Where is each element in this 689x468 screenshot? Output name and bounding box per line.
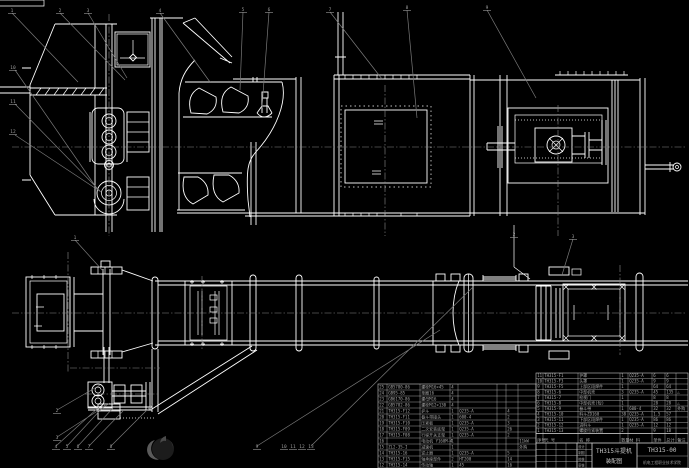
bom-table-right-cell: TH315-12 — [544, 423, 564, 428]
support-braces — [152, 346, 257, 414]
generated-annotations: 25GB5780-86螺栓M16×45424GB95-85垫圈16423GB61… — [8, 5, 688, 468]
bom-table-right-cell: 9 — [537, 384, 540, 389]
bom-table-left-cell: 3 — [507, 421, 510, 426]
bom-table-left-cell: TH315-F10 — [388, 421, 410, 426]
bom-table-right-cell: 3 — [537, 417, 540, 422]
bom-table-right-cell: 1 — [621, 373, 624, 378]
bom-table-left-cell: 螺母M16 — [421, 396, 437, 402]
leader-lines — [12, 10, 573, 446]
bom-table-left-cell: 4 — [507, 409, 510, 414]
bom-header-cell: 备注 — [677, 437, 686, 444]
bom-table-right-cell: 11 — [537, 373, 542, 378]
bom-table-right-cell: 检视门 — [579, 394, 591, 400]
title-product: TH315斗提机 — [596, 447, 632, 455]
bom-table-left-cell: 13 — [379, 457, 384, 462]
bom-table-left-cell: 轴承座部件 — [421, 456, 441, 462]
bom-table-left-cell: 螺栓M12×130 — [421, 402, 446, 408]
bom-table-left-cell: 12 — [379, 463, 384, 468]
bom-table-left-cell: 5 — [507, 451, 510, 456]
bom-table-right-cell: 1.5 — [653, 412, 661, 417]
bom-header-cell: 代 号 — [544, 437, 555, 444]
bom-table-right-cell: TH315-11 — [544, 417, 564, 422]
bom-table-right-cell: TH315-9 — [544, 406, 561, 411]
bom-table-right-cell: 1 — [621, 379, 624, 384]
bom-table-left-cell: 畚斗带接头 — [421, 414, 441, 420]
bom-table-right-cell: 4 — [537, 412, 540, 417]
bom-table-right-cell: 头罩 — [579, 378, 587, 384]
bom-table-right-cell: △ — [677, 390, 680, 395]
bom-table-right-cell: 28 — [653, 401, 658, 406]
bom-table-left-cell: 18 — [379, 427, 384, 432]
inspection-door — [345, 110, 427, 183]
bom-table-left-cell: 4 — [451, 403, 454, 408]
bom-table-right-cell: 中部机壳(短) — [579, 400, 604, 406]
bom-table-left-cell: 1 — [451, 409, 454, 414]
bom-table-right-cell: 6 — [653, 373, 656, 378]
bom-table-left-cell: 2 — [507, 433, 510, 438]
sheet-corner-frame — [0, 0, 44, 6]
bucket-bolt — [257, 92, 272, 117]
bom-table-left-cell: 17 — [379, 433, 384, 438]
bom-table-left-cell: 逆止器 — [421, 450, 433, 456]
bom-table-right-cell: △ — [677, 401, 680, 406]
bom-header-cell: 名 称 — [579, 437, 590, 444]
bom-table-left-cell: 1 — [451, 433, 454, 438]
bom-table-right-cell: 64 — [666, 384, 671, 389]
bom-table-left-cell: TH315-16 — [388, 451, 408, 456]
bom-table-right-cell: 10 — [537, 379, 542, 384]
drive-section — [470, 71, 681, 279]
bom-table-right-cell: 进料斗 — [579, 422, 591, 428]
bom-table-left-cell: 45 — [459, 463, 464, 468]
bom-table-left-cell: 行程开关支架 — [421, 432, 445, 438]
bom-table-left-cell: 1 — [451, 445, 454, 450]
bom-table-right-cell: Q235-A — [629, 379, 644, 384]
bom-table-right-cell: 57 — [666, 412, 671, 417]
bom-table-left-cell: Q235-A — [459, 409, 474, 414]
bom-table-right-cell: 螺旋拉紧装置 — [579, 427, 603, 433]
bom-header-cell: 材 料 — [629, 437, 641, 444]
bom-table-right-cell: 64 — [653, 384, 658, 389]
bom-table-left-cell: Q235-A — [459, 427, 474, 432]
bom-table-right-cell: 12 — [653, 423, 658, 428]
bom-table-left-cell: 600-4 — [459, 415, 472, 420]
bom-table-right-cell: 1 — [537, 428, 540, 433]
bom-table-left-cell: 16 — [379, 439, 384, 444]
title-drawing-no: TH315-00 — [648, 447, 677, 454]
bom-table-left-cell: 垫圈16 — [421, 390, 434, 396]
bom-table-left-cell: 1 — [451, 427, 454, 432]
bom-table-left-cell: 二次安装底架 — [421, 426, 445, 432]
vent-column — [335, 12, 346, 75]
bom-table-left-cell: GB5780-86 — [388, 385, 410, 390]
bom-table-left-cell: 26 — [507, 427, 512, 432]
bom-table-left-cell: GB95-85 — [388, 391, 405, 396]
middle-casing — [334, 75, 645, 216]
bom-table-right-cell: 1 — [621, 395, 624, 400]
bom-table-left-cell: 1 — [451, 415, 454, 420]
bom-table-right-cell: TH315-6 — [544, 390, 561, 395]
bom-table-left-cell: 2 — [507, 415, 510, 420]
bom-table-right-cell: 5 — [537, 406, 540, 411]
watermark-logo — [147, 436, 174, 460]
bom-table-right-cell: TH315-13 — [544, 428, 564, 433]
bom-table-right-cell: 9 — [653, 428, 656, 433]
bom-header-cell: 单件 — [653, 437, 661, 444]
drive-unit-plan — [88, 346, 257, 419]
bom-table-right-cell: 8 — [653, 395, 656, 400]
bom-table-right-cell: 12 — [666, 423, 671, 428]
bom-table-left-cell: 压紧板 — [421, 420, 433, 426]
bom-table-right-cell: 32 — [666, 406, 671, 411]
bom-table-left-cell: ZL2-35-I — [388, 445, 408, 450]
bom-table-left-cell: TH315-F08 — [388, 433, 410, 438]
signature-cells-cell: 审核 — [578, 463, 585, 468]
bom-table-left-cell: TH315-14 — [388, 463, 408, 468]
cad-svg: 25GB5780-86螺栓M16×45424GB95-85垫圈16423GB61… — [0, 0, 689, 468]
pulley-stack — [90, 108, 149, 214]
bom-table-right-cell: Q235-A — [629, 390, 644, 395]
bom-table-right-cell: 1 — [621, 423, 624, 428]
bom-table-right-cell: 9 — [653, 379, 656, 384]
signature-cells-cell: 制图 — [578, 450, 584, 455]
bom-table-right-cell: 28 — [666, 401, 671, 406]
bom-table-right-cell: TH315-10 — [544, 412, 564, 417]
bom-table-right-cell: 6 — [666, 373, 669, 378]
bom-table-left-cell: 14 — [507, 457, 512, 462]
bom-table-left-cell: 14 — [379, 451, 384, 456]
bom-table-left-cell: 4 — [451, 391, 454, 396]
bom-table-right-cell: Q235-A — [629, 373, 644, 378]
ledge-hatch-ticks — [36, 88, 104, 95]
bom-table-left-cell: 传动轴 — [421, 462, 433, 468]
bom-table-right-cell: 3 — [621, 390, 624, 395]
bom-table-left-cell: 21 — [379, 409, 384, 414]
bom-table-right-cell: 料斗ZD160 — [579, 411, 600, 417]
bom-table-right-cell: TH315-F3 — [544, 379, 564, 384]
bom-table-left-cell: 1 — [451, 463, 454, 468]
bom-table-right-cell: Q235-A — [629, 417, 644, 422]
bom-table-right-cell: 600-4 — [629, 406, 642, 411]
bom-table-right-cell: 38 — [621, 412, 626, 417]
bom-table-right-cell: 护罩 — [579, 372, 587, 378]
bom-table-left-cell: 外购 — [519, 444, 527, 450]
bolted-cover-plan — [563, 284, 625, 341]
bom-table-right-cell: 畚斗带 — [579, 405, 591, 411]
bom-table-right-cell: 2 — [621, 428, 624, 433]
bom-table-left-cell: Q235-A — [459, 451, 474, 456]
bom-table-right-cell: TH315-F1 — [544, 373, 564, 378]
signature-cells-cell: 设计 — [578, 444, 585, 449]
bom-table-left-cell: Q235-A — [459, 433, 474, 438]
bom-table-left-cell: 23 — [379, 397, 384, 402]
bom-table-left-cell: TH315-F11 — [388, 415, 410, 420]
bom-table-right-cell: 32 — [653, 406, 658, 411]
bom-table-left-cell: TH315-F09 — [388, 427, 410, 432]
signature-cells-cell: 校核 — [578, 456, 585, 461]
bom-table-right-cell: 1 — [621, 417, 624, 422]
bom-table-left-cell: 15 — [379, 445, 384, 450]
bom-table-left-cell: 4 — [451, 397, 454, 402]
bom-table-left-cell: 减速机 — [421, 444, 433, 450]
casing-walls — [150, 18, 183, 232]
bom-table-left-cell: 电动机 Y160M-4 — [421, 438, 453, 444]
bom-table-right-cell: TH315-8 — [544, 401, 561, 406]
bom-table-left-cell: 2 — [451, 457, 454, 462]
bom-table-left-cell: 1 — [451, 439, 454, 444]
bom-table-left-cell: 4 — [451, 385, 454, 390]
bom-table-right-cell: 1 — [621, 401, 624, 406]
top-view-elevation — [0, 12, 681, 279]
hood-curves — [179, 60, 283, 217]
bom-table-right-cell: 6 — [537, 401, 540, 406]
buckets — [183, 87, 248, 204]
bom-table-right-cell: 86 — [666, 417, 671, 422]
bom-table-right-cell: 1 — [621, 406, 624, 411]
bom-table-left-cell: 1 — [451, 421, 454, 426]
bom-table-left-cell: 16 — [507, 463, 512, 468]
cad-drawing-canvas: 25GB5780-86螺栓M16×45424GB95-85垫圈16423GB61… — [0, 0, 689, 468]
title-organization: 机电工程职业技术学院 — [643, 460, 681, 465]
bom-table-right-cell: 9 — [666, 379, 669, 384]
projection-line — [514, 225, 530, 279]
bom-table-right-cell: 8 — [537, 390, 540, 395]
bom-table-left-cell: 1 — [451, 451, 454, 456]
bom-table-right-cell: 7 — [537, 395, 540, 400]
tail-shaft — [645, 162, 674, 172]
bom-table-right-cell: Q235-A — [629, 423, 644, 428]
bom-table-left-cell: 24 — [379, 391, 384, 396]
bom-table-right-cell: TH315-7 — [544, 395, 561, 400]
bom-table-right-cell: 中部机壳 — [579, 389, 595, 395]
bom-table-right-cell: 86 — [653, 417, 658, 422]
bom-table-right-cell: 上部区段焊件 — [579, 383, 603, 389]
bom-table-right-cell: TH315-F5 — [544, 384, 564, 389]
bom-table-left-cell: 护斗 — [421, 408, 429, 414]
bom-table-left-cell: TH315-F12 — [388, 409, 410, 414]
bom-table-right-cell: 45 — [653, 390, 658, 395]
bucket-shelves — [177, 77, 339, 225]
bom-table-left-cell: 22 — [379, 403, 384, 408]
bom-table-right-cell: 下部区段焊件 — [579, 416, 603, 422]
bom-table-left-cell: TH315-F15 — [388, 457, 410, 462]
bom-table-left-cell: GB6170-86 — [388, 397, 410, 402]
bom-table-right-cell: 1 — [621, 384, 624, 389]
bom-table-left-cell: GB5782-86 — [388, 403, 410, 408]
bom-table-right-cell: 18 — [666, 428, 671, 433]
motor — [535, 128, 572, 162]
bom-table-left-cell: 11kW — [519, 439, 529, 444]
bom-table-right-cell: 8 — [666, 395, 669, 400]
bom-table-right-cell: Q235-A — [629, 412, 644, 417]
bom-table-right-cell: 2 — [537, 423, 540, 428]
bom-table-right-cell: 外购 — [677, 405, 685, 411]
bom-table-left-cell: Q235-A — [459, 421, 474, 426]
bom-table-left-cell: 19 — [379, 421, 384, 426]
bom-table-left-cell: 25 — [379, 385, 384, 390]
bom-table-right-cell: 135 — [666, 390, 674, 395]
bom-header-cell: 总计 — [666, 437, 674, 444]
bom-table-left-cell: 螺栓M16×45 — [421, 384, 444, 390]
feed-chute — [183, 18, 232, 63]
bom-table-left-cell: 20 — [379, 415, 384, 420]
inspection-box — [115, 32, 150, 67]
title-doc-type: 装配图 — [606, 457, 623, 465]
bom-table-left-cell: HT200 — [459, 457, 472, 462]
